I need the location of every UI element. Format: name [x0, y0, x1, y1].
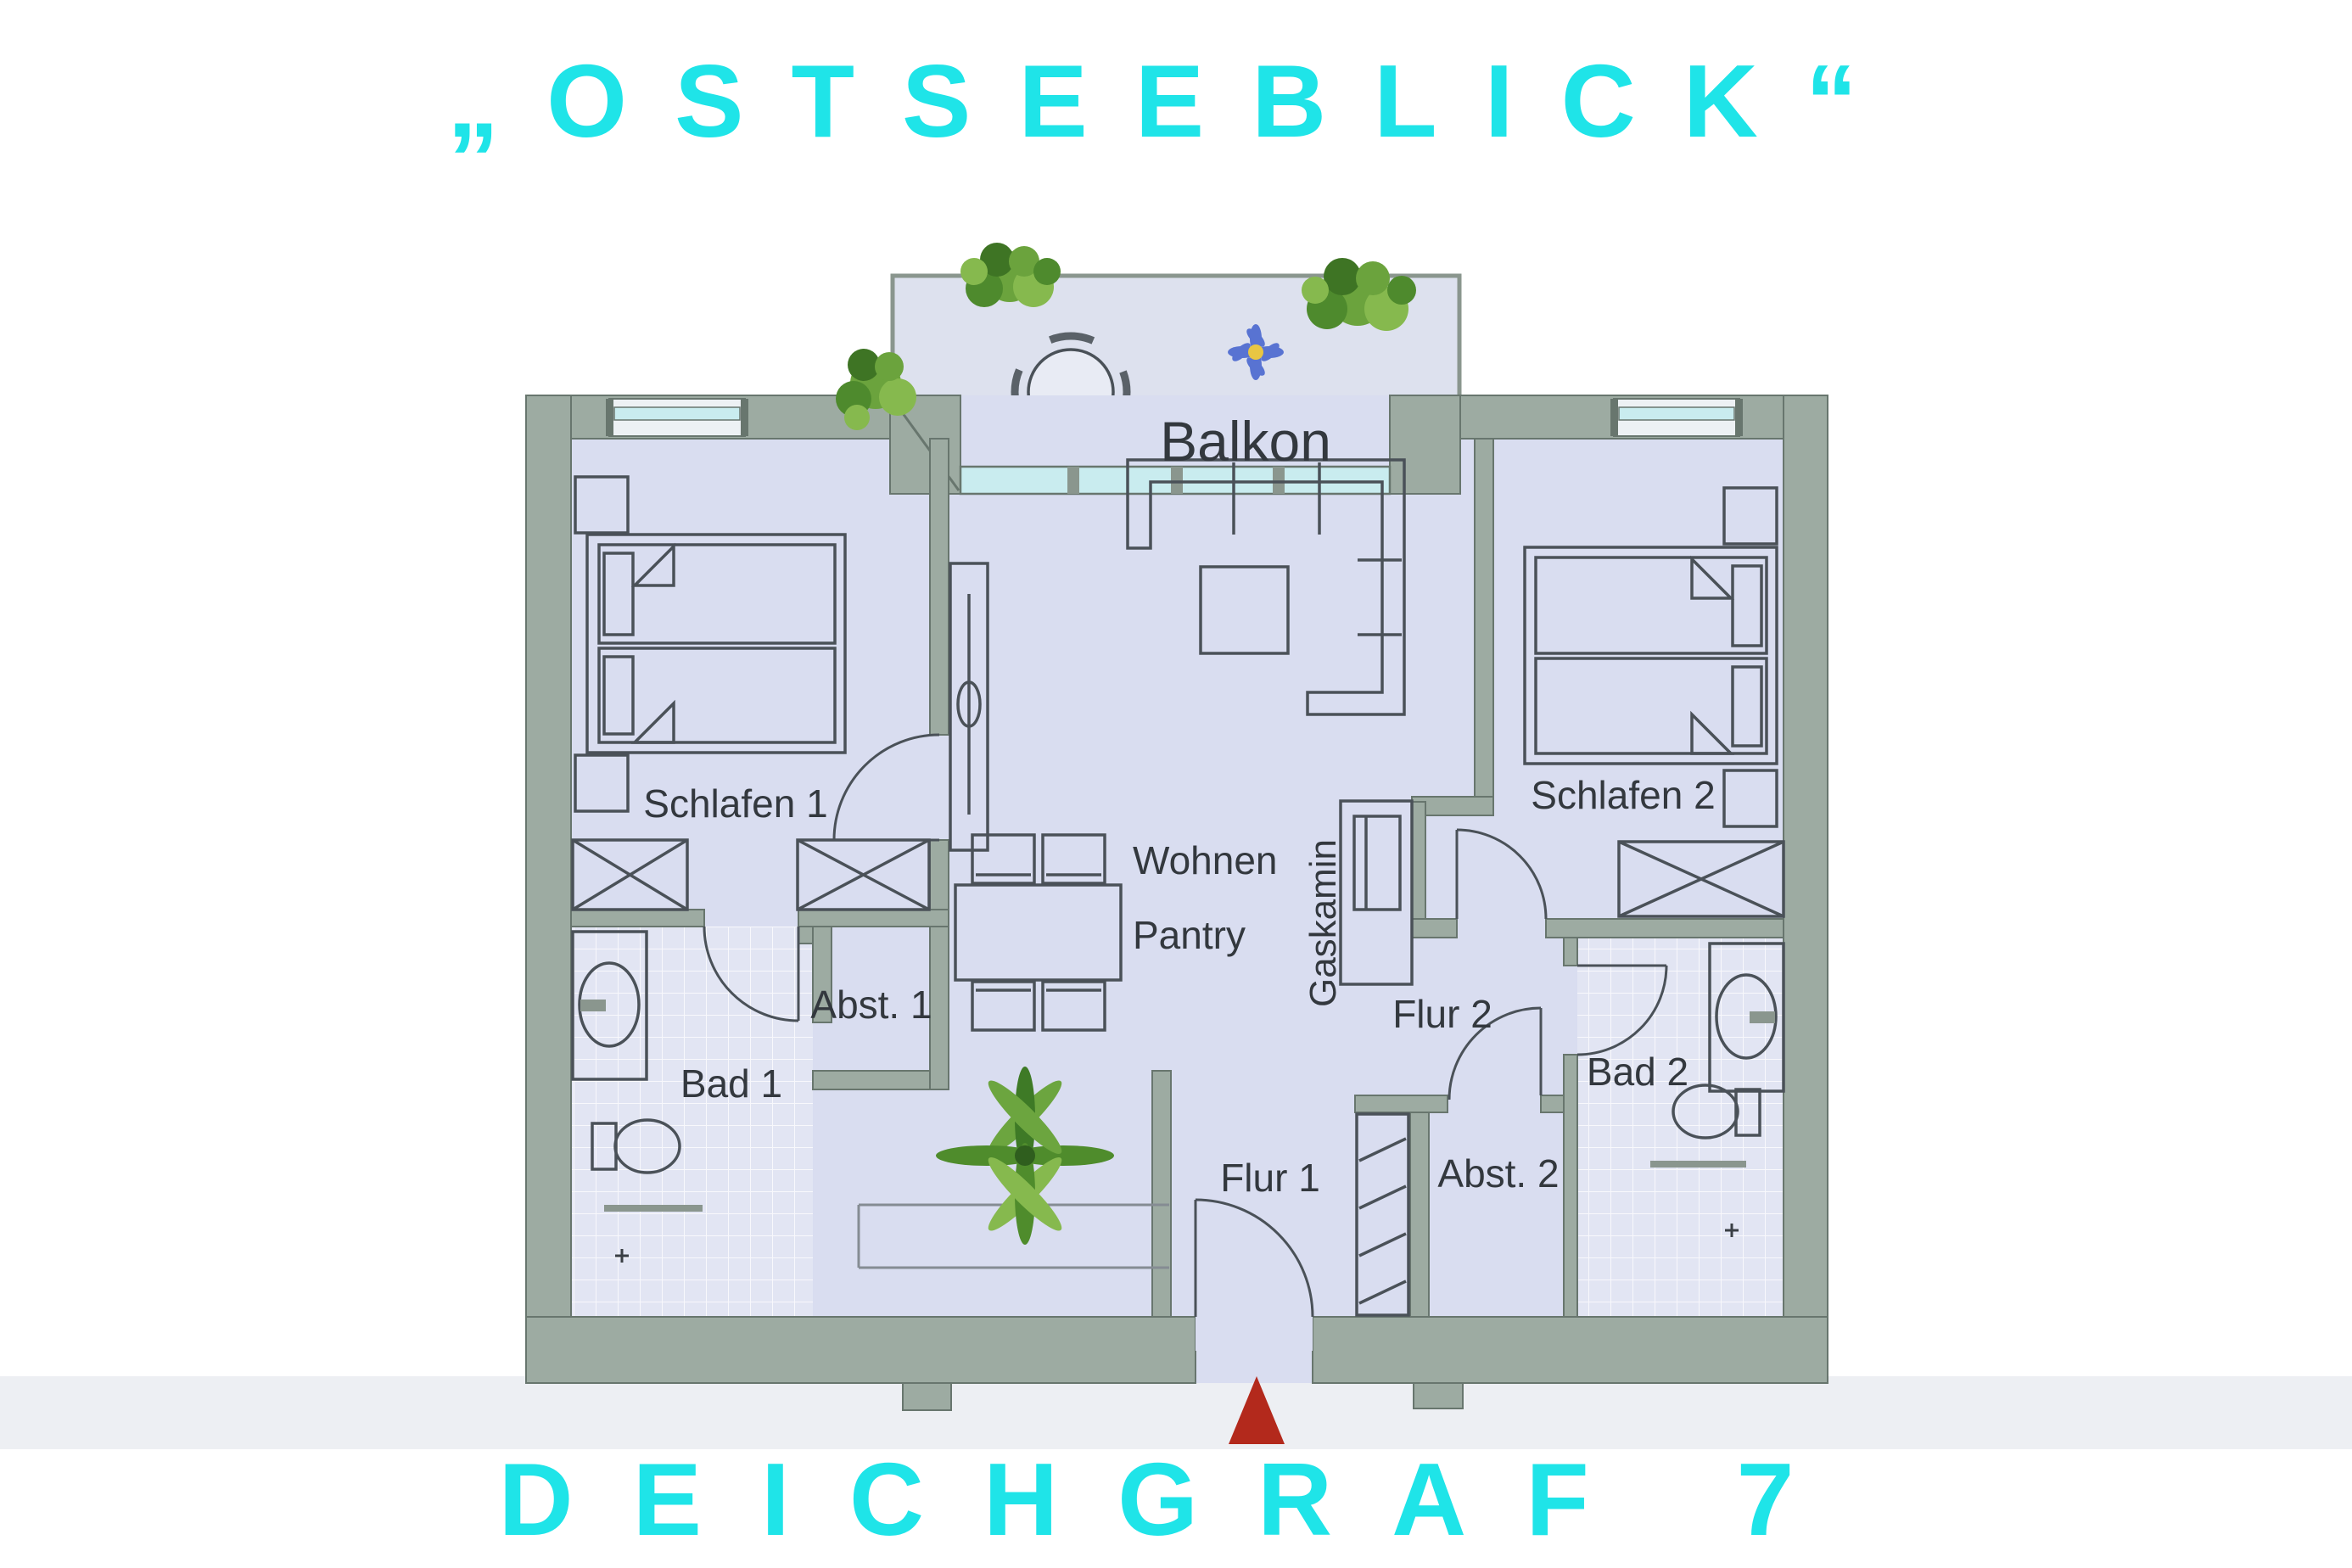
wall-segment-bottom-left: [526, 1317, 1196, 1383]
room-label-bedroom1: Schlafen 1: [643, 781, 827, 826]
wall-bedroom2-bottom-east: [1546, 919, 1784, 938]
window-glass: [614, 407, 740, 420]
wall-bad2-west-upper: [1564, 938, 1577, 966]
room-label-bath1: Bad 1: [680, 1061, 782, 1106]
entrance-arrow: [1229, 1376, 1285, 1444]
room-label-living-line2: Pantry: [1133, 913, 1246, 957]
bad1-tiles: [571, 927, 813, 1317]
wall-abst1-east: [930, 927, 949, 1089]
room-label-storage2: Abst. 2: [1437, 1151, 1559, 1196]
entrance-threshold: [1196, 1317, 1313, 1351]
room-label-storage1: Abst. 1: [810, 983, 932, 1027]
wall-abst2-top-west: [1355, 1095, 1448, 1112]
floor-plan: Balkon Schlafen 1 Schlafen 2 Wohnen Pant…: [0, 0, 2352, 1568]
window-glass: [1619, 407, 1734, 420]
wall-bedroom2-bottom-west: [1412, 919, 1457, 938]
wall-bedroom1-bottom-west: [571, 910, 704, 927]
wall-bad2-west-lower: [1564, 1055, 1577, 1317]
wall-segment-left: [526, 395, 571, 1383]
balcony-plant-left-corner: [960, 243, 1061, 307]
tap-2: [1750, 1011, 1775, 1023]
wall-abst2-west: [1410, 1112, 1429, 1317]
room-label-bath2: Bad 2: [1587, 1050, 1688, 1094]
room-label-fireplace: Gaskamin: [1302, 839, 1344, 1007]
wall-living-bedroom2: [1475, 439, 1493, 815]
room-label-hall1: Flur 1: [1220, 1156, 1320, 1200]
wall-stub-bottom-1: [903, 1383, 951, 1410]
window-jamb: [1735, 399, 1743, 436]
wall-bedroom1-living-upper: [930, 439, 949, 735]
wall-abst1-south: [813, 1071, 933, 1089]
window-jamb: [1610, 399, 1618, 436]
window-mullion: [1067, 467, 1079, 494]
tap-1: [580, 1000, 606, 1011]
window-jamb: [606, 399, 613, 436]
room-label-balcony: Balkon: [1160, 410, 1331, 473]
wall-pillar-right: [1390, 395, 1460, 494]
balcony-plant-right: [1302, 258, 1416, 331]
wall-stub-bottom-2: [1414, 1383, 1463, 1408]
room-label-living-line1: Wohnen: [1133, 838, 1278, 882]
wall-segment-right: [1784, 395, 1828, 1383]
window-jamb: [741, 399, 748, 436]
wall-abst2-top-east: [1541, 1095, 1564, 1112]
window-bedroom2: [1610, 399, 1743, 436]
room-label-hall2: Flur 2: [1392, 992, 1492, 1036]
wall-flur1-west: [1152, 1071, 1171, 1317]
wall-segment-bottom-right: [1313, 1317, 1828, 1383]
window-bedroom1: [606, 399, 748, 436]
wall-gaskamin: [1412, 802, 1425, 919]
room-label-bedroom2: Schlafen 2: [1531, 773, 1715, 817]
wall-bedroom1-bottom-east: [798, 910, 949, 927]
